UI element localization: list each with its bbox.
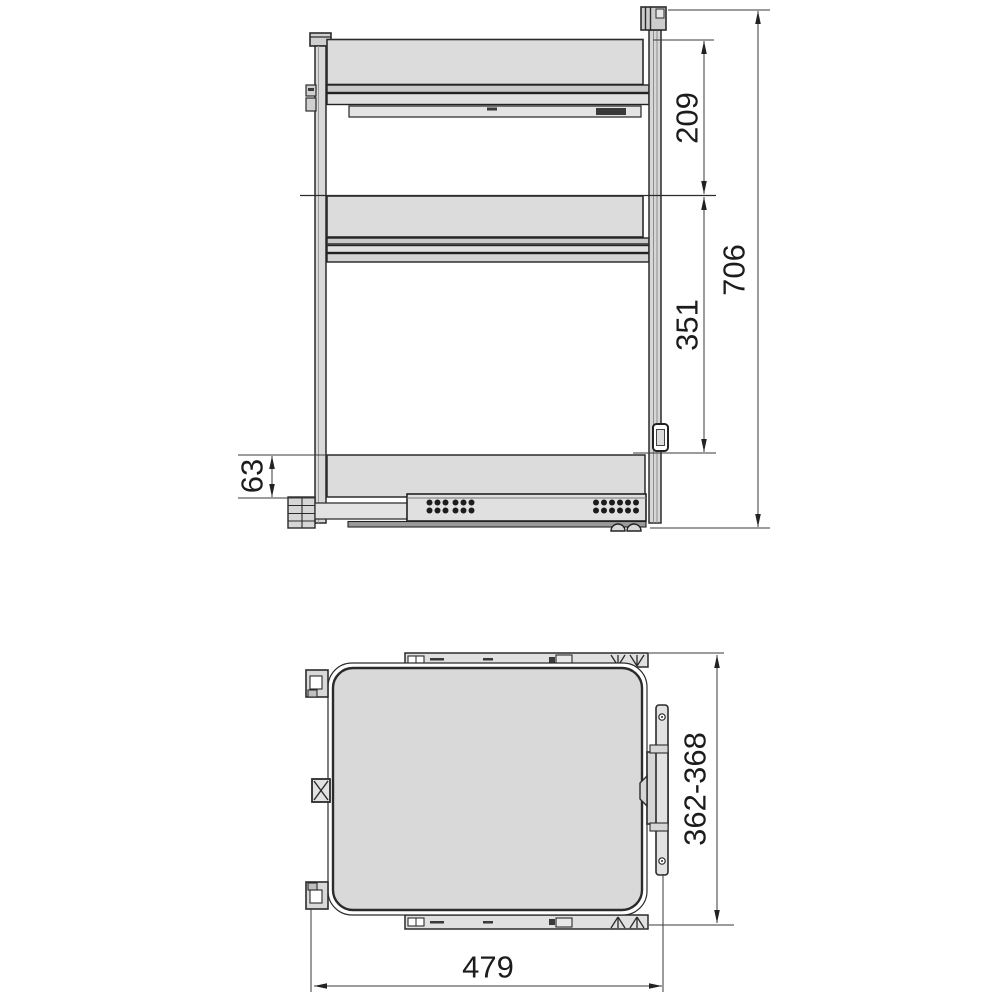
arrow-down [714,910,720,923]
dim-label-479: 479 [462,950,514,985]
technical-drawing-page: 209 351 706 63 [0,0,1000,1000]
bracket-slot [310,676,322,689]
post-hook-detail [308,88,314,91]
arrow-up [701,197,707,210]
plan-rail-tick [430,921,444,924]
post-hook-tab-lower [306,98,316,111]
dimension-362-368: 362-368 [678,655,720,923]
dim-label-351: 351 [670,299,705,351]
plan-rail-stop [549,919,555,925]
bottom-slide-assembly [288,494,646,531]
arrow-up [755,11,761,24]
middle-basket-rail-band-2 [327,246,649,253]
front-view: 209 351 706 63 [235,7,771,531]
left-post [306,33,331,523]
left-bracket-top [306,670,328,697]
slide-latch-detail [596,108,626,115]
arrow-up [714,655,720,668]
dim-label-63: 63 [235,459,270,493]
rail-clip-inner [657,430,665,446]
arrow-down [701,439,707,452]
top-basket [327,40,649,118]
tray-surface [333,668,642,910]
dimension-479: 479 [314,950,662,989]
arrow-down [755,514,761,527]
mounting-rail-step [650,823,668,831]
top-basket-rail-band-1 [327,85,649,93]
dim-label-706: 706 [717,244,752,296]
top-basket-rail-band-2 [327,94,649,105]
middle-basket-panel [327,196,643,237]
dimension-351: 351 [670,197,707,452]
arrow-up [701,41,707,54]
bracket-slot [310,890,322,903]
bottom-panel [327,455,645,497]
arrow-right [649,983,662,989]
top-view: 362-368 479 [306,653,734,992]
plan-rail-tick [430,658,444,661]
slide-shadow-bar [348,522,646,528]
bracket-foot [308,883,317,890]
middle-basket [327,196,649,262]
left-bracket-bottom [306,882,328,909]
dimension-706: 706 [717,11,761,527]
left-bracket-middle [312,779,330,802]
mounting-rail-bar [656,705,668,875]
screw-dot [661,716,663,718]
arrow-up [269,456,275,469]
dimension-63: 63 [235,456,275,497]
slide-left-bar [315,503,408,519]
screw-dot [661,860,663,862]
arrow-down [701,181,707,194]
slide-mid-detail [487,108,497,111]
middle-basket-rail-band-3 [327,254,649,263]
tray-plan [328,663,647,915]
technical-drawing: 209 351 706 63 [0,0,1000,1000]
middle-basket-rail-band-1 [327,238,649,244]
bracket-foot [308,690,317,697]
dim-label-209: 209 [670,92,705,144]
plan-slide-rail-bottom [405,915,648,929]
plan-rail-tick [483,658,493,661]
plan-rail-tick [483,921,493,924]
dim-label-362-368: 362-368 [678,732,713,846]
top-basket-panel [327,40,643,85]
arrow-left [314,983,327,989]
plan-rail-stop [549,657,555,663]
arrow-down [269,484,275,497]
plan-rail-clip-detail [556,918,572,927]
post-body [315,46,326,523]
dimension-209: 209 [670,41,707,194]
bracket-tab [656,9,664,18]
mounting-rail-step [650,745,668,753]
